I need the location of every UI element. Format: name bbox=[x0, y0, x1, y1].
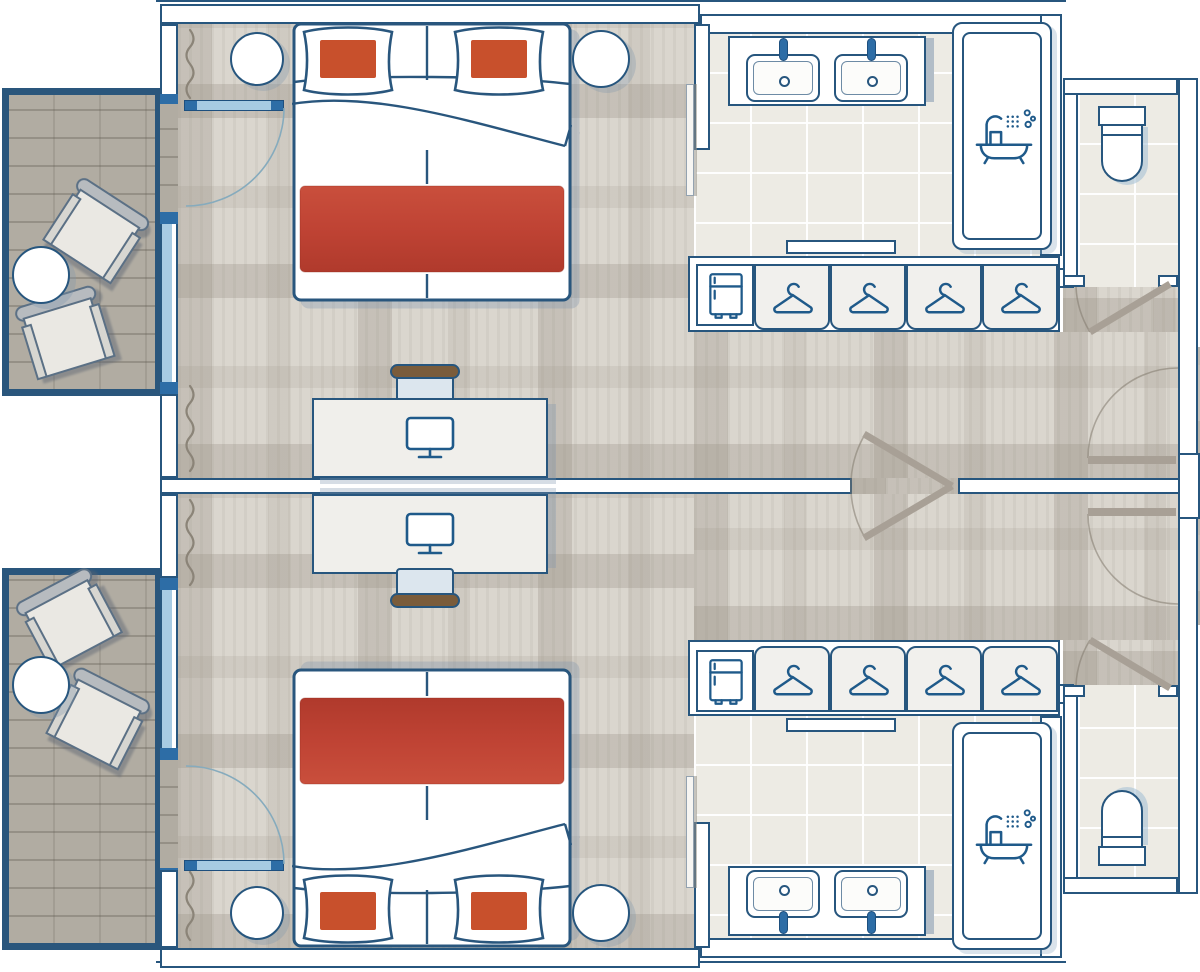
balcony-table bbox=[12, 246, 70, 304]
desk-chair bbox=[390, 593, 460, 608]
bath-shower-icon bbox=[971, 108, 1037, 166]
window-jamb bbox=[160, 212, 178, 224]
wc-door-jamb bbox=[1158, 685, 1178, 697]
hanger-icon bbox=[922, 282, 968, 316]
wc-wall-top bbox=[1063, 78, 1178, 95]
faucet bbox=[867, 38, 876, 61]
carpet-floor-top-wc-front bbox=[1063, 287, 1178, 332]
monitor-icon bbox=[403, 511, 457, 557]
hanger-icon bbox=[846, 282, 892, 316]
vanity-shadow bbox=[926, 38, 934, 102]
minibar-fridge-icon bbox=[706, 657, 746, 707]
sink bbox=[746, 54, 820, 102]
faucet bbox=[779, 38, 788, 61]
hanger-icon bbox=[846, 664, 892, 698]
carpet-floor-bottom-wc-front bbox=[1063, 640, 1178, 685]
bathroom-sliding-panel-bottom bbox=[686, 776, 694, 888]
wall-top-bedroom bbox=[160, 4, 700, 24]
bathtub-bottom bbox=[952, 722, 1052, 950]
toilet bbox=[1101, 124, 1143, 182]
wc-wall-bottom bbox=[1063, 877, 1178, 894]
window-jamb bbox=[160, 748, 178, 760]
wall-left-pier bbox=[160, 24, 178, 102]
minibar-cell bbox=[696, 650, 754, 712]
balcony-door-threshold-top bbox=[160, 102, 178, 212]
vanity-top bbox=[728, 36, 926, 106]
wardrobe-section bbox=[906, 646, 982, 712]
wall-bottom-bedroom bbox=[160, 948, 700, 968]
sink-drain bbox=[867, 76, 878, 87]
wall-bath-divider-top bbox=[694, 24, 710, 150]
toilet-tank bbox=[1098, 846, 1146, 866]
nightstand bbox=[230, 886, 284, 940]
double-bed-bottom bbox=[292, 668, 572, 948]
wc-wall-left bbox=[1063, 93, 1078, 277]
wardrobe-section bbox=[982, 646, 1058, 712]
sink-drain bbox=[779, 76, 790, 87]
desk-unit-top bbox=[312, 364, 548, 478]
desk-unit-bottom bbox=[312, 494, 548, 608]
nightstand bbox=[230, 32, 284, 86]
wall-bath-divider-bottom bbox=[694, 822, 710, 948]
vanity-bottom bbox=[728, 866, 926, 936]
wc-room-top bbox=[1063, 78, 1178, 287]
wall-left-pier bbox=[160, 394, 178, 478]
carpet-floor-connecting-gap bbox=[852, 478, 958, 494]
wall-right-top bbox=[1178, 78, 1198, 455]
faucet bbox=[779, 911, 788, 934]
bathtub-top bbox=[952, 22, 1052, 250]
party-wall-left bbox=[160, 478, 852, 494]
wardrobe-section bbox=[982, 264, 1058, 330]
wardrobe-section bbox=[754, 264, 830, 330]
sink bbox=[834, 54, 908, 102]
minibar-cell bbox=[696, 264, 754, 326]
faucet bbox=[867, 911, 876, 934]
hanger-icon bbox=[998, 282, 1044, 316]
bathroom-sliding-panel-top bbox=[686, 84, 694, 196]
window bbox=[162, 224, 172, 382]
floor-plan bbox=[0, 0, 1200, 972]
toilet-tank bbox=[1098, 106, 1146, 126]
hanger-icon bbox=[770, 282, 816, 316]
towel-shelf-top bbox=[786, 240, 896, 254]
nightstand bbox=[572, 884, 630, 942]
balcony-door-threshold-bottom bbox=[160, 760, 178, 870]
sink-drain bbox=[867, 885, 878, 896]
minibar-fridge-icon bbox=[706, 271, 746, 321]
window bbox=[162, 590, 172, 748]
wall-right-bottom bbox=[1178, 517, 1198, 894]
bath-shower-icon bbox=[971, 808, 1037, 866]
hanger-icon bbox=[922, 664, 968, 698]
wardrobe-section bbox=[754, 646, 830, 712]
nightstand bbox=[572, 30, 630, 88]
wardrobe-section bbox=[830, 264, 906, 330]
wardrobe-top bbox=[688, 256, 1060, 332]
party-wall-right bbox=[958, 478, 1198, 494]
hanger-icon bbox=[998, 664, 1044, 698]
wardrobe-bottom bbox=[688, 640, 1060, 716]
wc-door-jamb bbox=[1063, 275, 1085, 287]
wardrobe-section bbox=[906, 264, 982, 330]
wall-left-pier bbox=[160, 870, 178, 948]
entry-vestibule bbox=[1178, 453, 1200, 519]
wardrobe-section bbox=[830, 646, 906, 712]
double-bed-top bbox=[292, 22, 572, 302]
wall-left-pier bbox=[160, 494, 178, 578]
wc-door-jamb bbox=[1158, 275, 1178, 287]
carpet-floor-top-hallway bbox=[694, 332, 1178, 478]
window-jamb bbox=[160, 578, 178, 590]
door-jamb bbox=[160, 94, 178, 104]
sink-drain bbox=[779, 885, 790, 896]
wc-door-jamb bbox=[1063, 685, 1085, 697]
window-jamb bbox=[160, 382, 178, 394]
toilet bbox=[1101, 790, 1143, 848]
balcony-door-top bbox=[184, 100, 284, 111]
balcony-door-bottom bbox=[184, 860, 284, 871]
outer-boundary-line-top bbox=[156, 0, 1066, 2]
wc-room-bottom bbox=[1063, 685, 1178, 894]
hanger-icon bbox=[770, 664, 816, 698]
carpet-floor-bottom-hallway bbox=[694, 494, 1178, 640]
vanity-shadow bbox=[926, 870, 934, 934]
balcony-table bbox=[12, 656, 70, 714]
towel-shelf-bottom bbox=[786, 718, 896, 732]
monitor-icon bbox=[403, 415, 457, 461]
desk-chair bbox=[390, 364, 460, 379]
wc-wall-left bbox=[1063, 695, 1078, 879]
